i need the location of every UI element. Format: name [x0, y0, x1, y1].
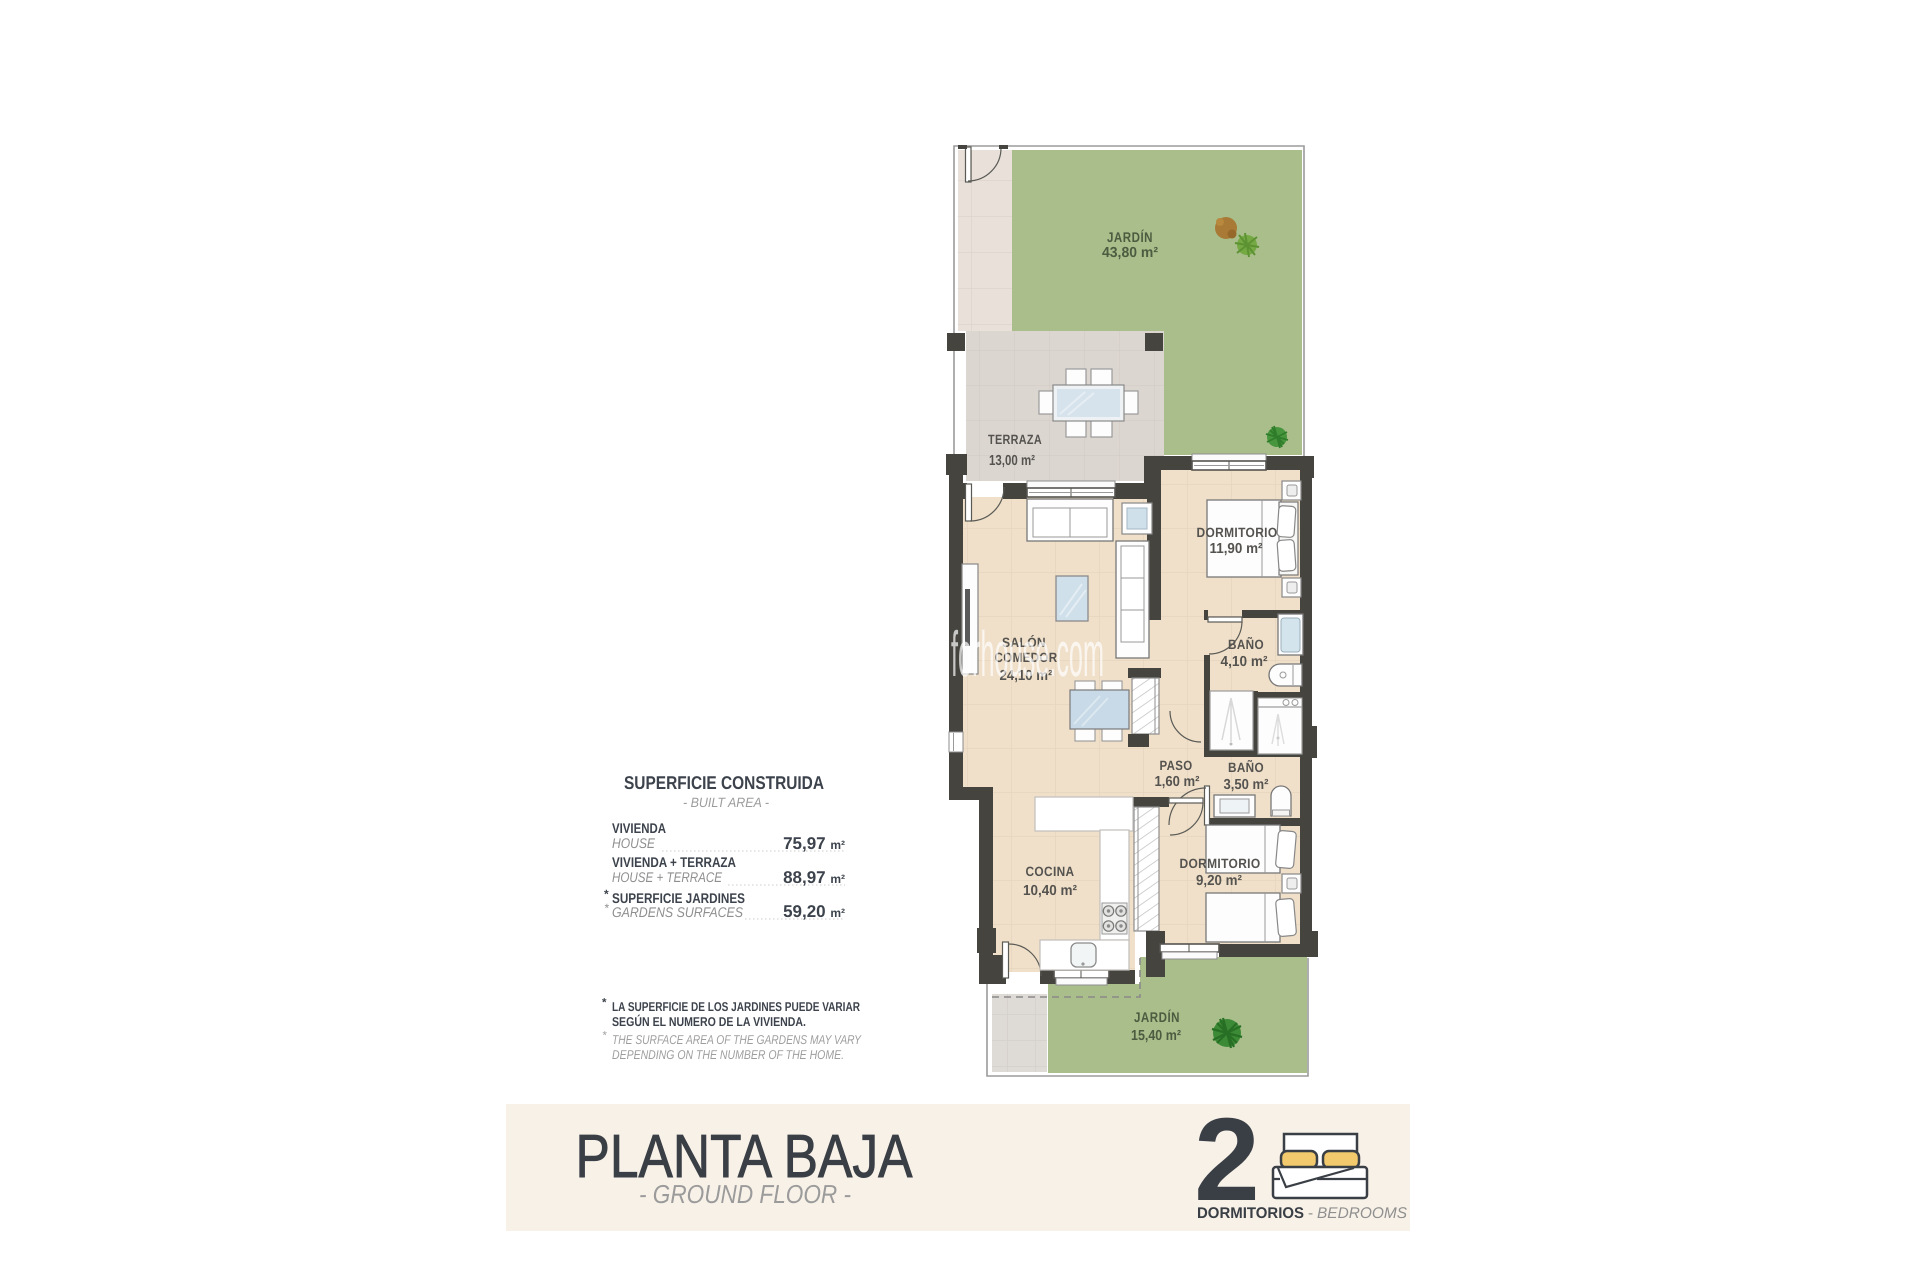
svg-text:VIVIENDA: VIVIENDA — [612, 820, 666, 836]
svg-text:GARDENS SURFACES: GARDENS SURFACES — [612, 904, 744, 920]
svg-text:SEGÚN EL NUMERO DE LA VIVIENDA: SEGÚN EL NUMERO DE LA VIVIENDA. — [612, 1014, 806, 1029]
svg-text:HOUSE + TERRACE: HOUSE + TERRACE — [612, 869, 723, 885]
svg-text:13,00 m²: 13,00 m² — [989, 453, 1035, 469]
svg-text:*: * — [602, 1030, 607, 1042]
svg-text:10,40 m²: 10,40 m² — [1023, 883, 1077, 899]
svg-text:JARDÍN: JARDÍN — [1107, 229, 1153, 245]
svg-text:COCINA: COCINA — [1026, 864, 1075, 879]
svg-text:*: * — [604, 887, 609, 901]
svg-text:4,10 m²: 4,10 m² — [1221, 654, 1268, 670]
svg-text:3,50 m²: 3,50 m² — [1224, 777, 1269, 793]
svg-text:DEPENDING ON THE NUMBER OF THE: DEPENDING ON THE NUMBER OF THE HOME. — [612, 1047, 844, 1062]
svg-text:DORMITORIO: DORMITORIO — [1180, 856, 1261, 871]
svg-text:DORMITORIOS: DORMITORIOS — [1197, 1205, 1304, 1222]
svg-text:BAÑO: BAÑO — [1228, 759, 1264, 775]
svg-text:11,90 m²: 11,90 m² — [1210, 541, 1263, 557]
svg-text:15,40 m²: 15,40 m² — [1131, 1028, 1181, 1044]
svg-text:- GROUND FLOOR -: - GROUND FLOOR - — [639, 1179, 851, 1209]
svg-text:JARDÍN: JARDÍN — [1134, 1009, 1180, 1025]
svg-text:SUPERFICIE CONSTRUIDA: SUPERFICIE CONSTRUIDA — [624, 772, 824, 793]
svg-text:THE SURFACE AREA OF THE GARDEN: THE SURFACE AREA OF THE GARDENS MAY VARY — [612, 1032, 862, 1047]
svg-text:TERRAZA: TERRAZA — [988, 432, 1042, 447]
svg-text:- BUILT AREA -: - BUILT AREA - — [683, 795, 769, 810]
svg-text:43,80 m²: 43,80 m² — [1102, 245, 1158, 261]
svg-text:1,60 m²: 1,60 m² — [1155, 774, 1200, 790]
svg-text:*: * — [602, 997, 607, 1009]
svg-text:VIVIENDA + TERRAZA: VIVIENDA + TERRAZA — [612, 854, 736, 870]
svg-text:DORMITORIO: DORMITORIO — [1197, 525, 1278, 540]
svg-text:forhouse.com: forhouse.com — [951, 618, 1104, 690]
svg-text:-: - — [1308, 1205, 1313, 1222]
svg-text:*: * — [604, 901, 609, 915]
svg-text:HOUSE: HOUSE — [612, 835, 656, 851]
svg-text:BAÑO: BAÑO — [1228, 636, 1264, 652]
svg-text:9,20 m²: 9,20 m² — [1196, 873, 1242, 889]
svg-text:PASO: PASO — [1160, 758, 1193, 773]
svg-text:LA SUPERFICIE DE LOS JARDINES: LA SUPERFICIE DE LOS JARDINES PUEDE VARI… — [612, 999, 860, 1014]
svg-text:BEDROOMS: BEDROOMS — [1317, 1205, 1408, 1222]
